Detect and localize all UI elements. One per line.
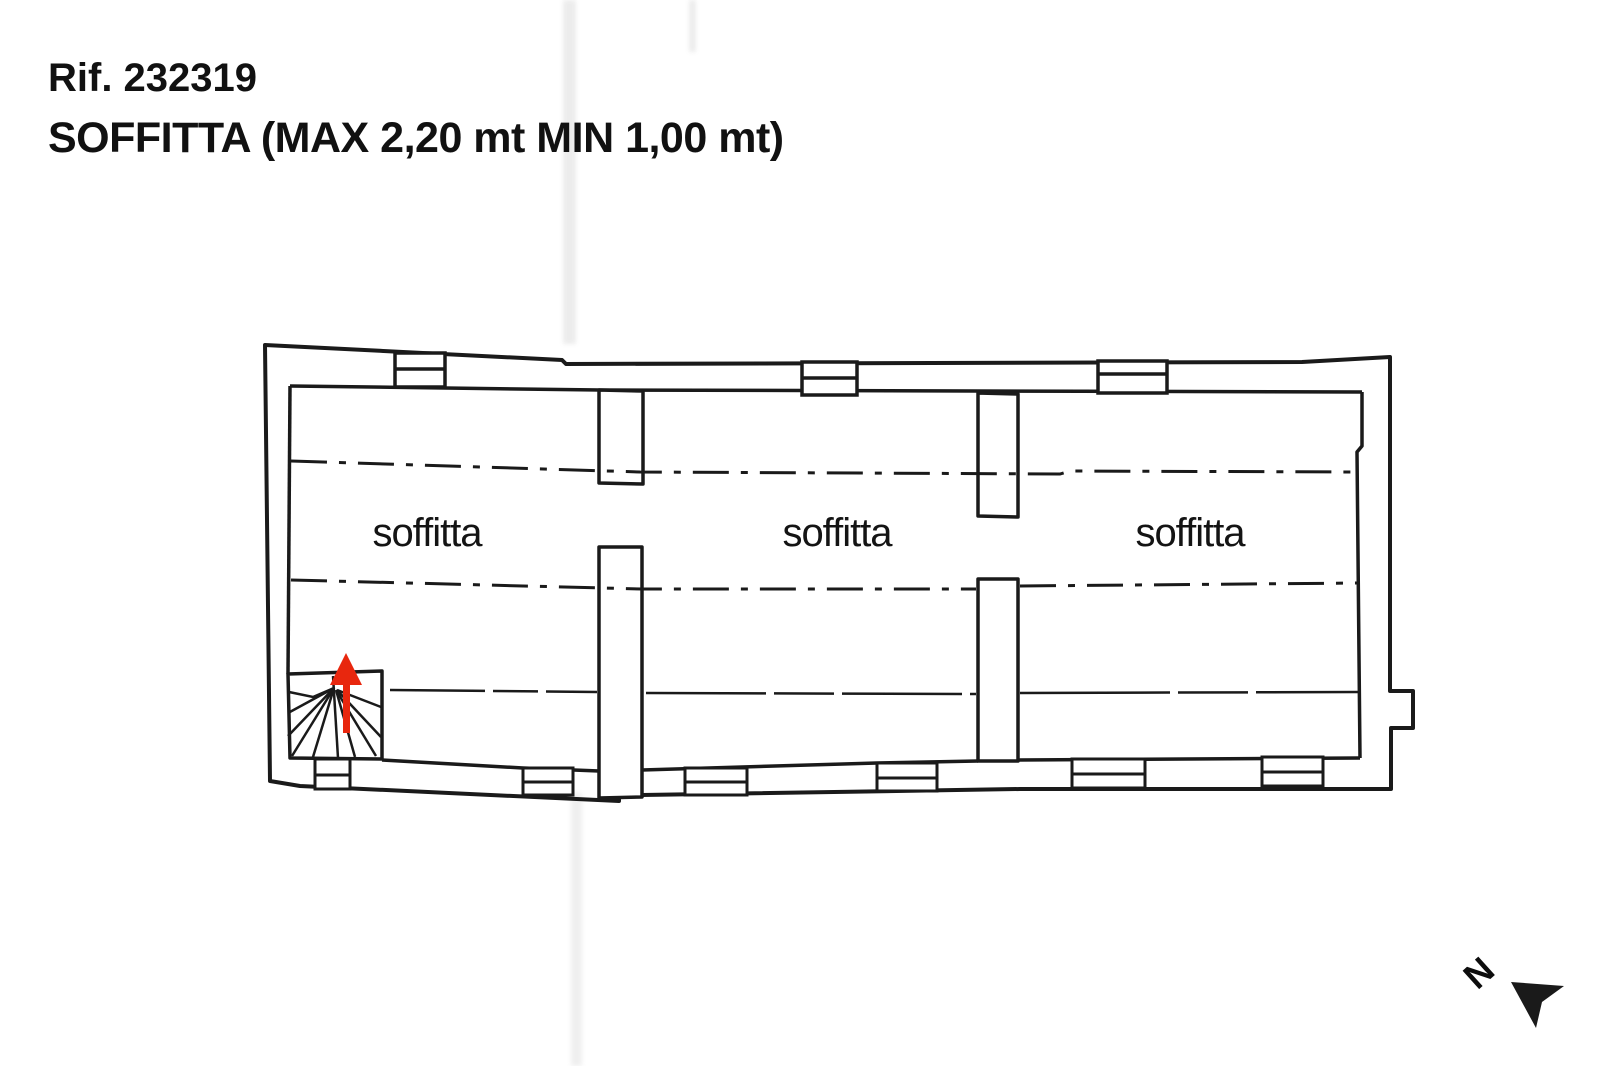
chimney-block xyxy=(1098,361,1167,393)
inner-walls xyxy=(288,386,1362,771)
ridge-line-lower-mid xyxy=(646,693,976,694)
partition-room2-room3-upper xyxy=(978,393,1018,517)
ridge-line-lower-right xyxy=(1020,692,1360,693)
ridge-line-lower xyxy=(390,690,597,692)
partition-room1-room2-lower xyxy=(599,547,642,798)
north-indicator: N xyxy=(1455,949,1564,1028)
height-limit-lines xyxy=(291,461,1360,694)
staircase xyxy=(288,653,382,759)
room-label-soffitta-3: soffitta xyxy=(1135,511,1246,555)
partition-walls xyxy=(599,390,1018,798)
ridge-line-upper xyxy=(291,461,1360,474)
room-label-soffitta-1: soffitta xyxy=(372,511,483,555)
partition-room2-room3-lower xyxy=(978,579,1018,761)
room-label-soffitta-2: soffitta xyxy=(782,511,893,555)
north-label: N xyxy=(1455,949,1502,997)
north-arrow-icon xyxy=(1511,982,1564,1028)
ridge-line-middle-right xyxy=(1020,583,1360,586)
floor-plan-drawing: soffitta soffitta soffitta N xyxy=(0,0,1600,1066)
floor-plan-page: Rif. 232319 SOFFITTA (MAX 2,20 mt MIN 1,… xyxy=(0,0,1600,1066)
partition-room1-room2-upper xyxy=(599,390,643,484)
outer-wall xyxy=(265,345,1413,801)
